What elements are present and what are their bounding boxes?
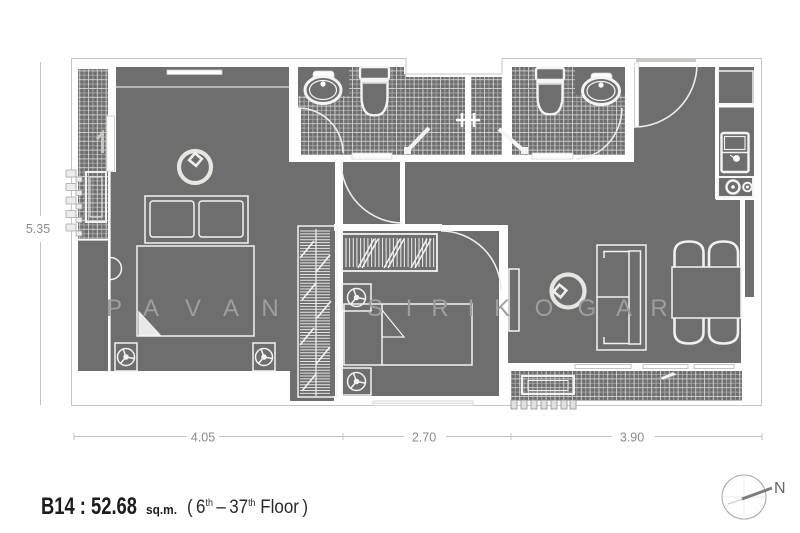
svg-text:S: S xyxy=(367,295,383,322)
svg-text:3.90: 3.90 xyxy=(620,431,644,445)
svg-text:R: R xyxy=(650,295,667,322)
svg-text:I: I xyxy=(468,295,475,322)
svg-text:( 6th – 37th Floor ): ( 6th – 37th Floor ) xyxy=(187,497,308,518)
svg-text:4.05: 4.05 xyxy=(191,431,215,445)
svg-text:A: A xyxy=(143,295,159,322)
svg-text:A: A xyxy=(223,295,239,322)
svg-text:P: P xyxy=(106,295,122,322)
svg-text:R: R xyxy=(431,295,448,322)
svg-text:I: I xyxy=(406,295,413,322)
svg-text:A: A xyxy=(616,295,632,322)
svg-text:2.70: 2.70 xyxy=(412,431,436,445)
svg-text:sq.m.: sq.m. xyxy=(146,503,177,517)
svg-text:O: O xyxy=(535,295,554,322)
svg-text:B14 : 52.68: B14 : 52.68 xyxy=(41,493,137,520)
svg-text:K: K xyxy=(494,295,510,322)
svg-text:V: V xyxy=(185,295,201,322)
svg-text:N: N xyxy=(774,480,786,497)
svg-text:5.35: 5.35 xyxy=(26,222,50,236)
svg-text:N: N xyxy=(261,295,278,322)
svg-text:G: G xyxy=(578,295,597,322)
